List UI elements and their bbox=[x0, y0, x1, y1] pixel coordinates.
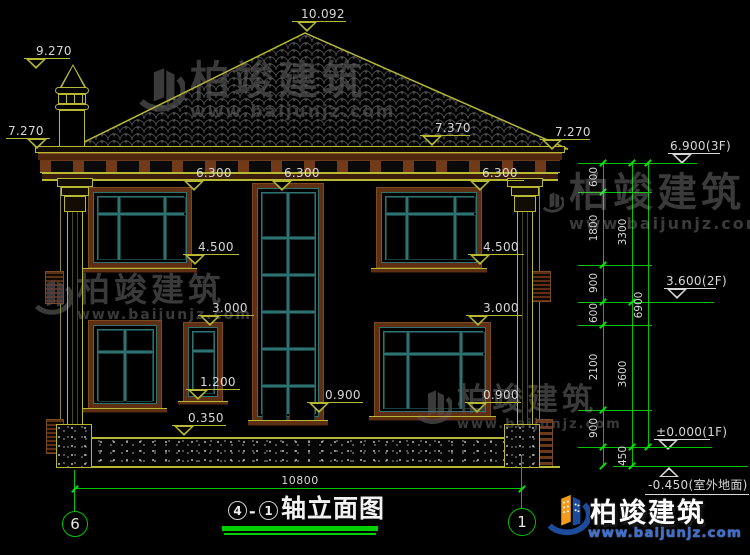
elevation-label: ±0.000(1F) bbox=[656, 426, 727, 439]
elevation-marker-line bbox=[468, 254, 524, 255]
brand-logo-icon bbox=[30, 272, 72, 324]
elevation-marker-triangle bbox=[658, 440, 678, 450]
elevation-marker-line bbox=[420, 135, 470, 136]
dimension-tick bbox=[599, 462, 607, 470]
elevation-marker-triangle bbox=[470, 181, 490, 191]
elevation-marker-triangle bbox=[174, 426, 194, 436]
elevation-marker-triangle bbox=[659, 467, 679, 477]
elevation-label: 3.000 bbox=[483, 302, 519, 315]
elevation-marker-line bbox=[24, 58, 70, 59]
brand-url: www.baijunjz.com bbox=[588, 525, 742, 541]
elevation-marker-line bbox=[270, 180, 326, 181]
elevation-marker-line bbox=[307, 402, 363, 403]
elevation-marker-triangle bbox=[468, 316, 488, 326]
elevation-marker-triangle bbox=[667, 289, 687, 299]
elevation-marker-triangle bbox=[27, 139, 47, 149]
elevation-marker-triangle bbox=[542, 140, 562, 150]
elevation-marker-line bbox=[654, 439, 710, 440]
elevation-label: 7.370 bbox=[435, 122, 471, 135]
elevation-marker-line bbox=[540, 139, 590, 140]
elevation-marker-triangle bbox=[297, 22, 317, 32]
elevation-marker-line bbox=[468, 180, 524, 181]
elevation-label: 0.900 bbox=[325, 389, 361, 402]
elevation-marker-line bbox=[664, 288, 716, 289]
elevation-label: 1.200 bbox=[200, 376, 236, 389]
dimension-tick bbox=[518, 485, 526, 493]
elevation-marker-triangle bbox=[184, 181, 204, 191]
elevation-marker-line bbox=[182, 180, 238, 181]
elevation-marker-triangle bbox=[309, 403, 329, 413]
elevation-label: 3.600(2F) bbox=[666, 275, 727, 288]
elevation-label: 9.270 bbox=[36, 45, 72, 58]
elevation-label: 7.270 bbox=[8, 125, 44, 138]
elevation-label: 10.092 bbox=[301, 8, 345, 21]
elevation-label: 6.300 bbox=[196, 167, 232, 180]
brand-logo-icon bbox=[133, 60, 185, 122]
elevation-marker-line bbox=[466, 315, 522, 316]
elevation-marker-line bbox=[186, 389, 240, 390]
elevation-marker-line bbox=[172, 425, 226, 426]
watermark: 柏竣建筑 www.baijunjz.com bbox=[540, 172, 750, 233]
elevation-label: 0.350 bbox=[188, 412, 224, 425]
elevation-marker-line bbox=[668, 153, 720, 154]
elevation-marker-triangle bbox=[188, 390, 208, 400]
elevation-marker-triangle bbox=[185, 255, 205, 265]
brand-logo: 柏竣建筑 www.baijunjz.com bbox=[540, 483, 750, 555]
watermark: 柏竣建筑 www.baijunjz.com bbox=[133, 60, 396, 122]
elevation-marker-triangle bbox=[422, 136, 442, 146]
brand-logo-icon bbox=[542, 487, 590, 545]
elevation-marker-triangle bbox=[470, 255, 490, 265]
elevation-label: 6.300 bbox=[284, 167, 320, 180]
brand-logo-icon bbox=[540, 179, 564, 227]
elevation-label: 4.500 bbox=[198, 241, 234, 254]
elevation-label: 6.900(3F) bbox=[670, 140, 731, 153]
elevation-marker-line bbox=[183, 254, 239, 255]
watermark: 柏竣建筑 www.baijunjz.com bbox=[30, 272, 252, 324]
cad-elevation-drawing: 10800 6 1 4 - 1 轴立面图 柏竣建筑 www.baijunjz.c… bbox=[0, 0, 750, 555]
elevation-marker-line bbox=[292, 21, 346, 22]
watermark: 柏竣建筑 www.baijunjz.com bbox=[412, 383, 622, 433]
elevation-marker-triangle bbox=[272, 181, 292, 191]
elevation-label: 4.500 bbox=[483, 241, 519, 254]
elevation-marker-line bbox=[6, 138, 50, 139]
dimension-value: 6900 bbox=[632, 270, 646, 340]
dimension-tick bbox=[71, 485, 79, 493]
elevation-label: 6.300 bbox=[482, 167, 518, 180]
brand-logo-icon bbox=[412, 383, 452, 433]
elevation-marker-triangle bbox=[26, 59, 46, 69]
elevation-label: 7.270 bbox=[555, 126, 591, 139]
